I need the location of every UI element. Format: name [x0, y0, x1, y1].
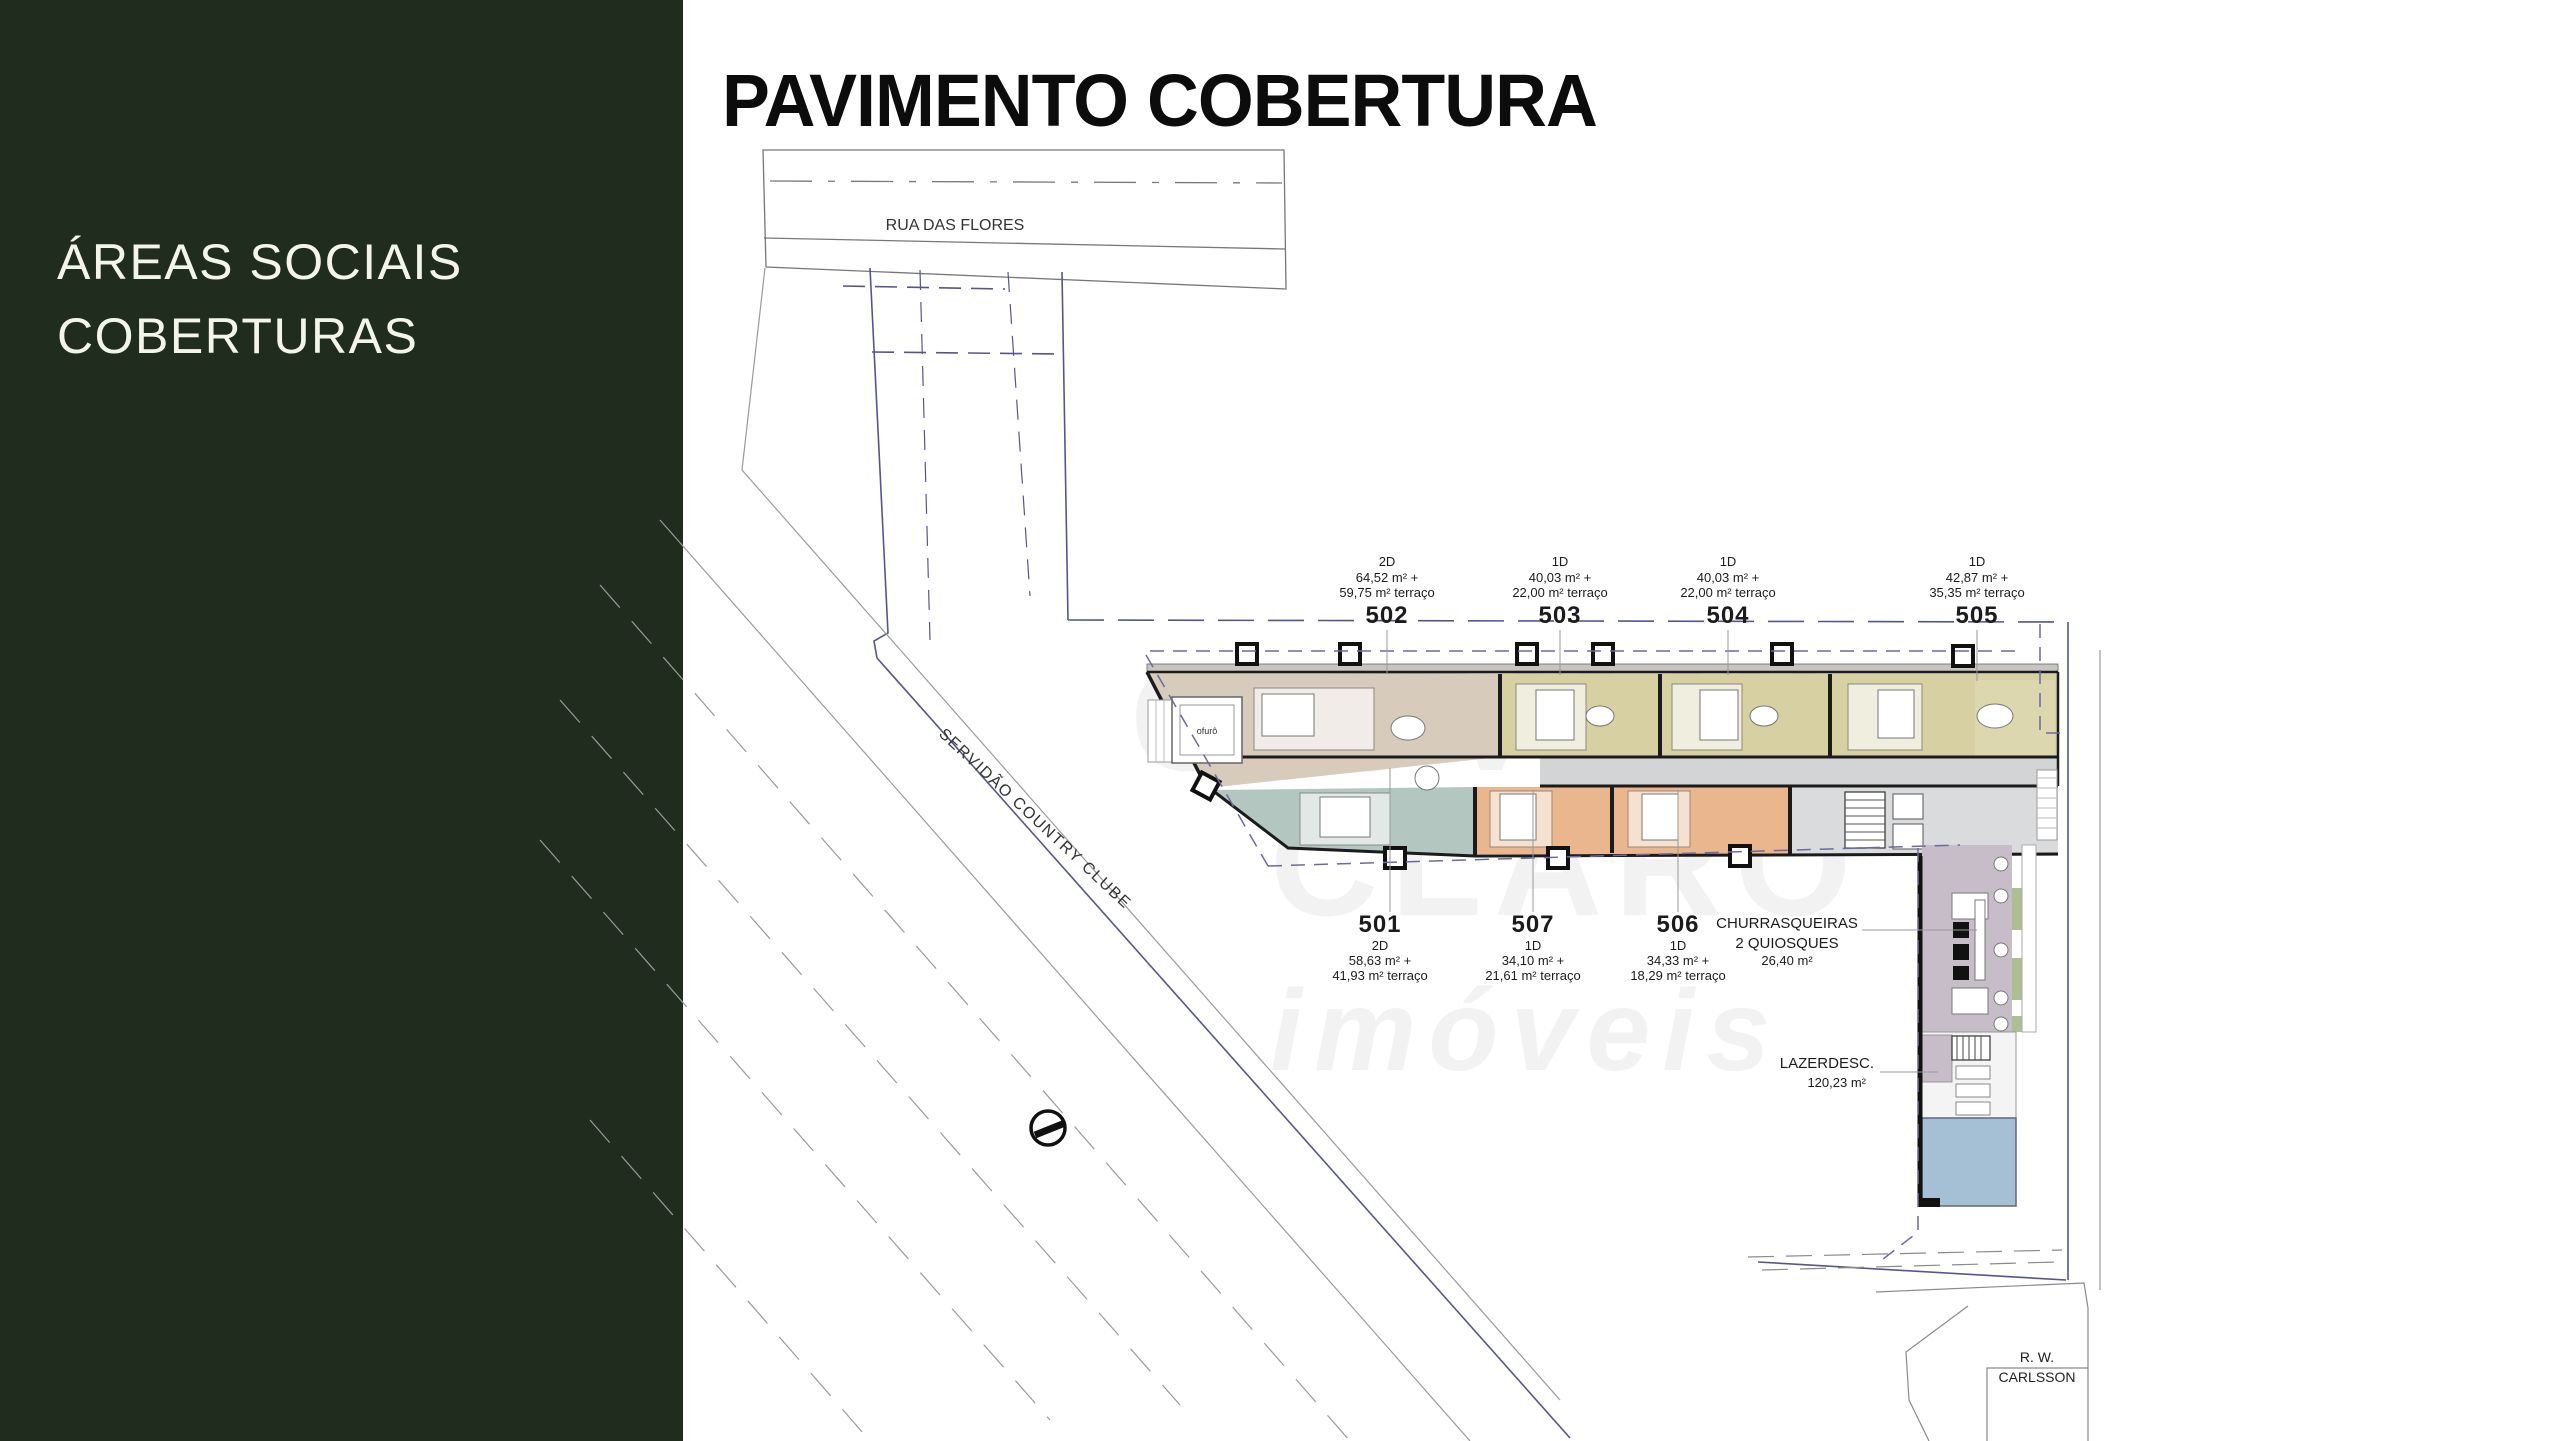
svg-text:CHURRASQUEIRAS: CHURRASQUEIRAS — [1716, 915, 1858, 932]
building: ofurô — [1147, 644, 2058, 868]
svg-text:18,29 m² terraço: 18,29 m² terraço — [1630, 968, 1725, 983]
svg-text:1D: 1D — [1720, 554, 1737, 569]
ofuro-label: ofurô — [1197, 726, 1218, 736]
svg-text:120,23 m²: 120,23 m² — [1807, 1075, 1866, 1090]
svg-text:42,87 m² +: 42,87 m² + — [1946, 570, 2009, 585]
svg-text:2D: 2D — [1372, 938, 1389, 953]
svg-text:502: 502 — [1365, 602, 1408, 629]
svg-text:41,93 m² terraço: 41,93 m² terraço — [1332, 968, 1427, 983]
street-label-carlsson: CARLSSON — [1998, 1369, 2075, 1385]
svg-text:22,00 m² terraço: 22,00 m² terraço — [1512, 585, 1607, 600]
loungers — [1956, 1066, 1990, 1115]
street-label-rw: R. W. — [2020, 1349, 2054, 1365]
churrasqueiras-label: CHURRASQUEIRAS 2 QUIOSQUES 26,40 m² — [1716, 915, 1858, 968]
compass-icon — [1031, 1111, 1065, 1145]
svg-text:40,03 m² +: 40,03 m² + — [1529, 570, 1592, 585]
svg-text:504: 504 — [1706, 602, 1749, 629]
pool — [1922, 1118, 2016, 1206]
unit-label-504: 1D 40,03 m² + 22,00 m² terraço 504 — [1680, 554, 1775, 629]
watermark-line3: imóveis — [1270, 967, 1782, 1095]
svg-text:40,03 m² +: 40,03 m² + — [1697, 570, 1760, 585]
floor-plan: GIOVANI CLARO imóveis RUA DAS FLORES — [0, 0, 2560, 1441]
svg-text:59,75 m² terraço: 59,75 m² terraço — [1339, 585, 1434, 600]
svg-text:1D: 1D — [1969, 554, 1986, 569]
svg-text:503: 503 — [1538, 602, 1581, 629]
svg-text:506: 506 — [1656, 911, 1699, 938]
svg-text:1D: 1D — [1552, 554, 1569, 569]
slide: ÁREAS SOCIAIS COBERTURAS PAVIMENTO COBER… — [0, 0, 2560, 1441]
svg-text:501: 501 — [1358, 911, 1401, 938]
wing-stairs — [1952, 1036, 1990, 1060]
svg-text:1D: 1D — [1525, 938, 1542, 953]
svg-text:2 QUIOSQUES: 2 QUIOSQUES — [1735, 935, 1838, 952]
lazer-label: LAZERDESC. 120,23 m² — [1780, 1055, 1874, 1090]
street-rua-das-flores — [763, 150, 1286, 289]
svg-text:58,63 m² +: 58,63 m² + — [1349, 953, 1412, 968]
svg-text:21,61 m² terraço: 21,61 m² terraço — [1485, 968, 1580, 983]
leisure-wing — [1918, 845, 2036, 1207]
svg-text:34,33 m² +: 34,33 m² + — [1647, 953, 1710, 968]
unit-labels-bottom: 501 2D 58,63 m² + 41,93 m² terraço 507 1… — [1332, 911, 1725, 983]
unit-label-503: 1D 40,03 m² + 22,00 m² terraço 503 — [1512, 554, 1607, 629]
svg-text:26,40 m²: 26,40 m² — [1761, 953, 1813, 968]
svg-text:2D: 2D — [1379, 554, 1396, 569]
ofuro-tub: ofurô — [1148, 697, 1242, 763]
svg-text:35,35 m² terraço: 35,35 m² terraço — [1929, 585, 2024, 600]
svg-text:LAZERDESC.: LAZERDESC. — [1780, 1055, 1874, 1072]
street-label-rua-das-flores: RUA DAS FLORES — [886, 217, 1025, 234]
grill-counter — [1953, 922, 1969, 980]
unit-labels-top: 2D 64,52 m² + 59,75 m² terraço 502 1D 40… — [1339, 554, 2024, 629]
svg-text:64,52 m² +: 64,52 m² + — [1356, 570, 1419, 585]
svg-text:507: 507 — [1511, 911, 1554, 938]
svg-text:34,10 m² +: 34,10 m² + — [1502, 953, 1565, 968]
svg-text:505: 505 — [1955, 602, 1998, 629]
unit-label-502: 2D 64,52 m² + 59,75 m² terraço 502 — [1339, 554, 1434, 629]
unit-label-505: 1D 42,87 m² + 35,35 m² terraço 505 — [1929, 554, 2024, 629]
street-label-servidao: SERVIDÃO COUNTRY CLUBE — [935, 723, 1136, 912]
svg-text:22,00 m² terraço: 22,00 m² terraço — [1680, 585, 1775, 600]
svg-text:1D: 1D — [1670, 938, 1687, 953]
corridor — [1540, 758, 2058, 787]
